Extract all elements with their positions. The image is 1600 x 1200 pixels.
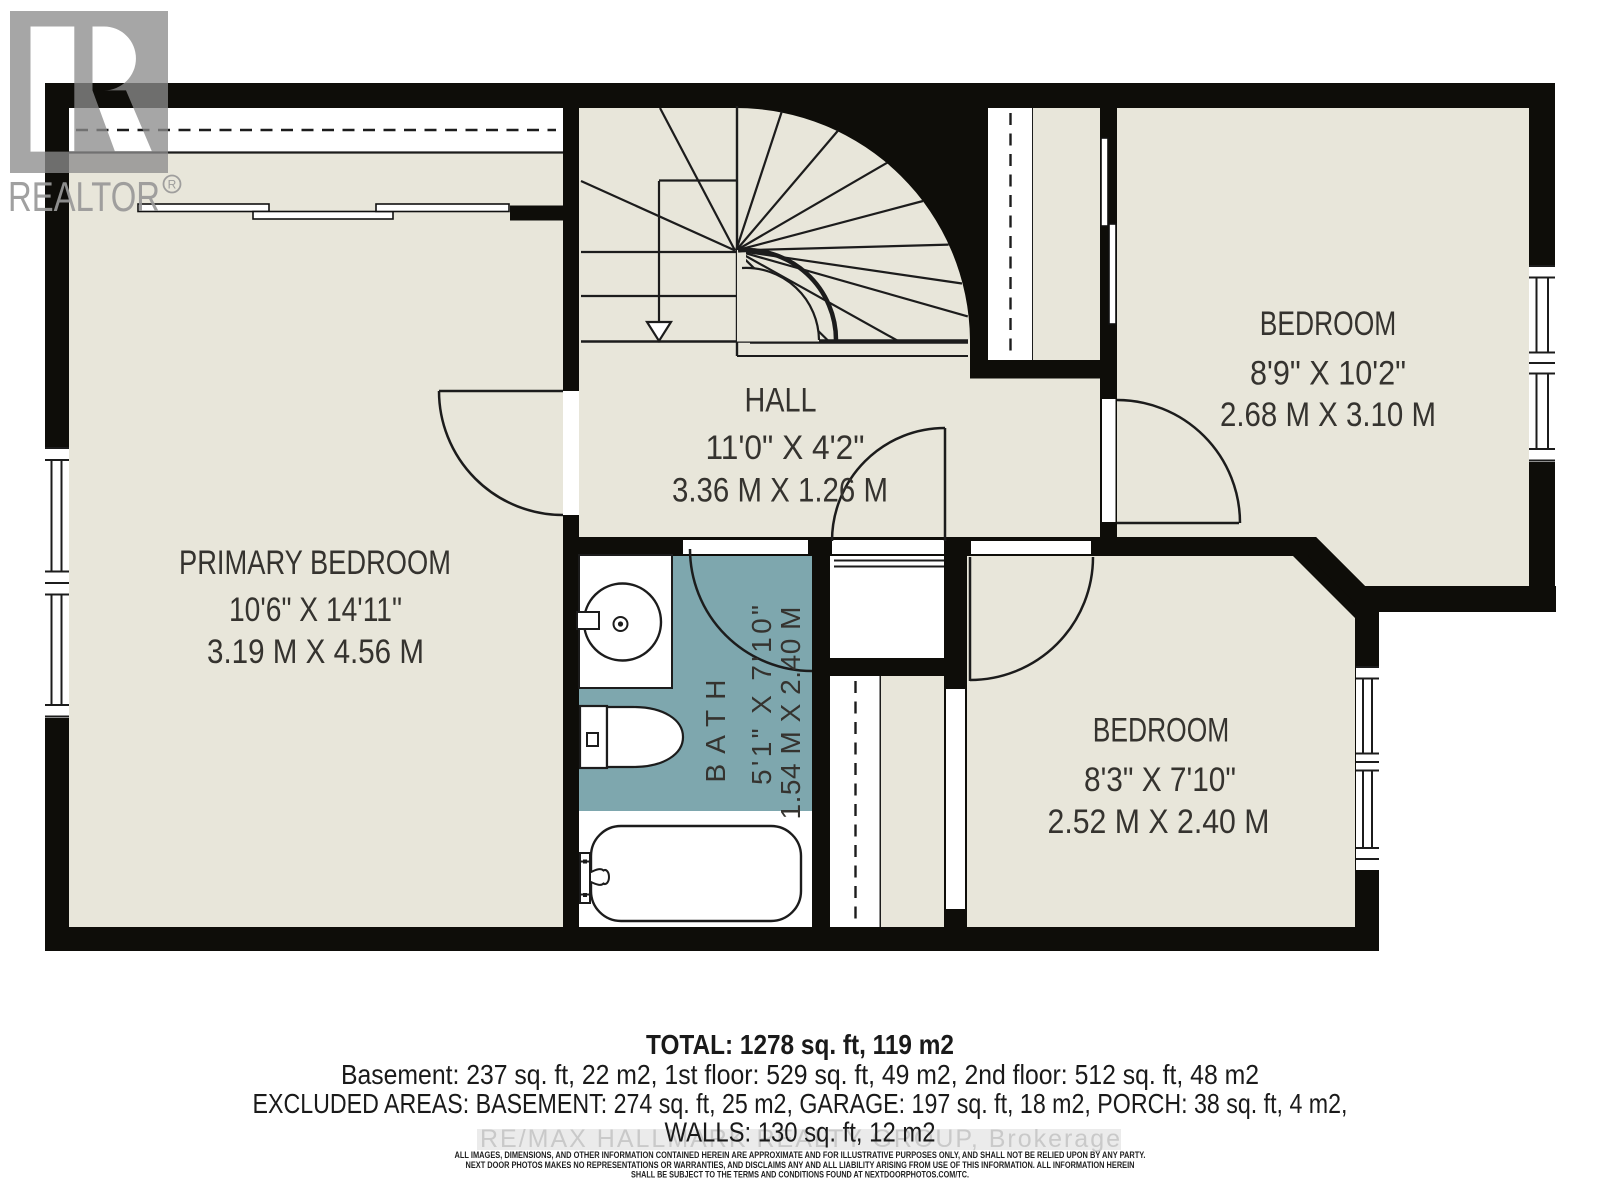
svg-text:TOTAL: 1278 sq. ft, 119 m2: TOTAL: 1278 sq. ft, 119 m2 [646, 1029, 954, 1060]
svg-text:11'0" X 4'2": 11'0" X 4'2" [706, 429, 865, 467]
svg-text:BEDROOM: BEDROOM [1093, 712, 1230, 750]
svg-text:REALTOR: REALTOR [8, 173, 160, 220]
svg-text:SHALL BE SUBJECT TO THE TERMS: SHALL BE SUBJECT TO THE TERMS AND CONDIT… [631, 1170, 969, 1181]
svg-text:EXCLUDED AREAS: BASEMENT: 274: EXCLUDED AREAS: BASEMENT: 274 sq. ft, 25… [253, 1088, 1348, 1119]
svg-text:Basement: 237 sq. ft, 22 m2, 1: Basement: 237 sq. ft, 22 m2, 1st floor: … [341, 1059, 1259, 1090]
svg-text:2.68 M X 3.10 M: 2.68 M X 3.10 M [1220, 396, 1436, 434]
svg-text:PRIMARY BEDROOM: PRIMARY BEDROOM [179, 544, 451, 582]
svg-text:2.52 M X 2.40 M: 2.52 M X 2.40 M [1048, 803, 1270, 841]
svg-text:8'9" X 10'2": 8'9" X 10'2" [1250, 355, 1406, 393]
svg-text:10'6" X 14'11": 10'6" X 14'11" [229, 591, 402, 629]
svg-text:1.54 M X 2.40 M: 1.54 M X 2.40 M [775, 607, 806, 820]
svg-text:3.19 M X 4.56 M: 3.19 M X 4.56 M [207, 633, 424, 671]
svg-text:HALL: HALL [745, 382, 817, 420]
svg-text:WALLS: 130 sq. ft, 12 m2: WALLS: 130 sq. ft, 12 m2 [665, 1117, 936, 1148]
svg-text:R: R [168, 178, 177, 192]
svg-text:8'3" X 7'10": 8'3" X 7'10" [1084, 761, 1236, 799]
svg-text:3.36 M X 1.26 M: 3.36 M X 1.26 M [672, 472, 888, 510]
svg-text:BEDROOM: BEDROOM [1260, 305, 1397, 343]
